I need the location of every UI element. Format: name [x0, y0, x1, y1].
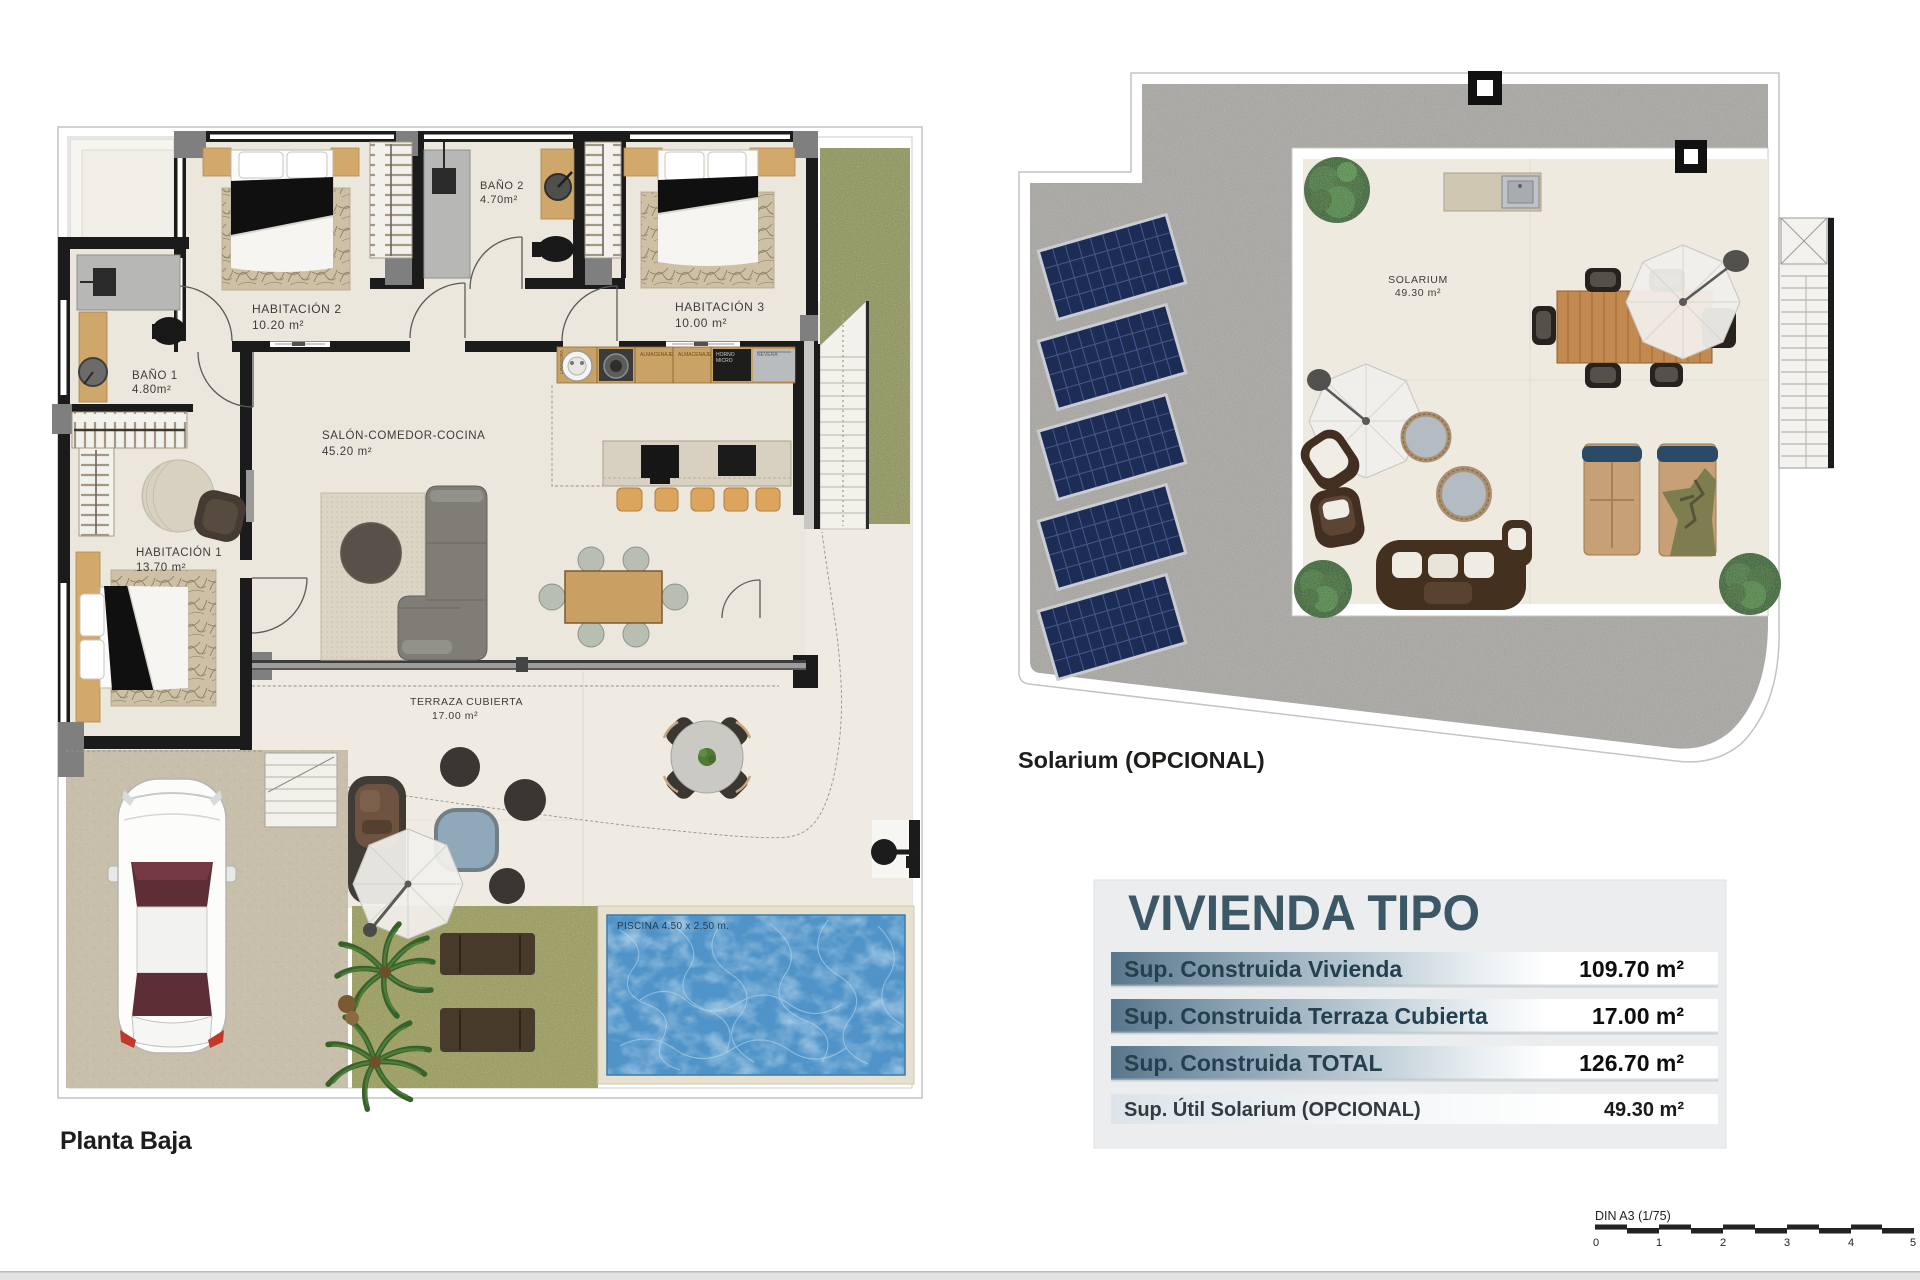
svg-text:SALÓN-COMEDOR-COCINA: SALÓN-COMEDOR-COCINA	[322, 429, 485, 442]
svg-text:4.80m²: 4.80m²	[132, 384, 171, 396]
svg-text:PISCINA 4.50 x 2.50 m.: PISCINA 4.50 x 2.50 m.	[617, 921, 729, 932]
svg-text:4: 4	[1848, 1237, 1854, 1249]
svg-text:0: 0	[1593, 1237, 1599, 1249]
svg-text:TERRAZA CUBIERTA: TERRAZA CUBIERTA	[410, 696, 523, 708]
svg-text:VIVIENDA TIPO: VIVIENDA TIPO	[1128, 885, 1480, 941]
svg-text:109.70 m²: 109.70 m²	[1579, 956, 1684, 982]
svg-text:49.30 m²: 49.30 m²	[1395, 287, 1441, 299]
svg-text:MICRO: MICRO	[716, 358, 733, 364]
svg-text:BAÑO 1: BAÑO 1	[132, 369, 178, 382]
svg-text:4.70m²: 4.70m²	[480, 194, 518, 206]
svg-text:Sup. Construida Vivienda: Sup. Construida Vivienda	[1124, 956, 1402, 982]
svg-text:17.00 m²: 17.00 m²	[1592, 1003, 1684, 1029]
svg-text:17.00 m²: 17.00 m²	[432, 710, 478, 722]
svg-text:BAÑO 2: BAÑO 2	[480, 179, 524, 192]
svg-text:Sup. Construida TOTAL: Sup. Construida TOTAL	[1124, 1050, 1383, 1076]
svg-text:ALMACENAJE: ALMACENAJE	[640, 352, 674, 358]
svg-text:Sup. Útil Solarium (OPCIONAL): Sup. Útil Solarium (OPCIONAL)	[1124, 1097, 1421, 1121]
svg-text:2: 2	[1720, 1237, 1726, 1249]
svg-text:1: 1	[1656, 1237, 1662, 1249]
svg-text:HABITACIÓN 3: HABITACIÓN 3	[675, 299, 765, 314]
svg-text:Planta Baja: Planta Baja	[60, 1127, 193, 1155]
svg-text:NEVERA: NEVERA	[757, 352, 778, 358]
svg-text:13.70 m²: 13.70 m²	[136, 562, 186, 574]
svg-text:126.70 m²: 126.70 m²	[1579, 1050, 1684, 1076]
svg-text:HABITACIÓN 1: HABITACIÓN 1	[136, 546, 222, 559]
svg-text:3: 3	[1784, 1237, 1790, 1249]
svg-text:10.00 m²: 10.00 m²	[675, 316, 727, 330]
svg-text:HABITACIÓN 2: HABITACIÓN 2	[252, 301, 342, 316]
svg-text:Sup. Construida Terraza Cubier: Sup. Construida Terraza Cubierta	[1124, 1003, 1488, 1029]
svg-text:45.20 m²: 45.20 m²	[322, 446, 372, 458]
svg-text:5: 5	[1910, 1237, 1916, 1249]
svg-text:49.30 m²: 49.30 m²	[1604, 1099, 1684, 1121]
svg-text:SOLARIUM: SOLARIUM	[1388, 274, 1448, 286]
svg-text:Solarium (OPCIONAL): Solarium (OPCIONAL)	[1018, 747, 1265, 773]
svg-text:LAVADORA: LAVADORA	[559, 350, 564, 374]
svg-text:10.20 m²: 10.20 m²	[252, 318, 304, 332]
svg-text:ALMACENAJE: ALMACENAJE	[678, 352, 712, 358]
svg-text:DIN A3 (1/75): DIN A3 (1/75)	[1595, 1209, 1671, 1223]
